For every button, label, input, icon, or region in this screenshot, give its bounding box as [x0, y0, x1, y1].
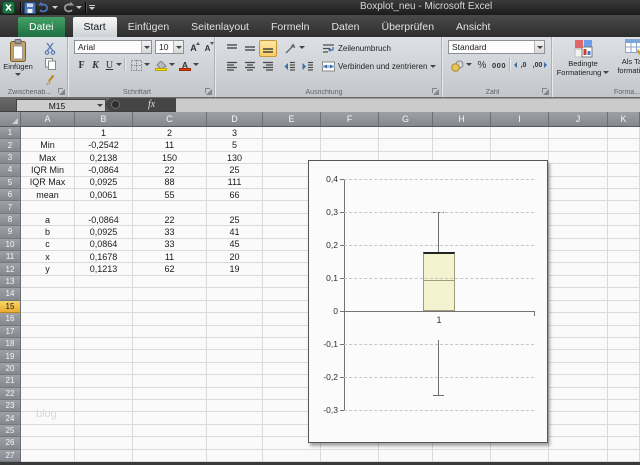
cell-A18[interactable]	[21, 338, 75, 350]
cell-B12[interactable]: 0,1213	[75, 263, 133, 275]
cell-A8[interactable]: a	[21, 214, 75, 226]
customize-quick-access-icon[interactable]	[89, 5, 95, 10]
cell-K18[interactable]	[608, 338, 640, 350]
row-header-11[interactable]: 11	[0, 251, 21, 263]
number-dialog-launcher-icon[interactable]	[542, 88, 549, 95]
row-header-9[interactable]: 9	[0, 226, 21, 238]
row-header-6[interactable]: 6	[0, 189, 21, 201]
cell-K26[interactable]	[608, 437, 640, 449]
tab-formeln[interactable]: Formeln	[260, 17, 321, 37]
cell-J26[interactable]	[549, 437, 608, 449]
cell-B8[interactable]: -0,0864	[75, 214, 133, 226]
cell-B14[interactable]	[75, 288, 133, 300]
cell-B10[interactable]: 0,0864	[75, 239, 133, 251]
tab-ansicht[interactable]: Ansicht	[445, 17, 501, 37]
column-header-B[interactable]: B	[75, 112, 133, 127]
italic-button[interactable]: K	[88, 57, 103, 74]
merge-center-icon	[322, 61, 335, 72]
cell-K23[interactable]	[608, 400, 640, 412]
number-format-combo[interactable]: Standard	[448, 40, 545, 54]
cell-D4[interactable]: 25	[207, 164, 263, 176]
row-header-27[interactable]: 27	[0, 450, 21, 462]
cell-A17[interactable]	[21, 326, 75, 338]
cell-D10[interactable]: 45	[207, 239, 263, 251]
align-top-button[interactable]	[223, 40, 241, 57]
cell-K12[interactable]	[608, 263, 640, 275]
cell-K27[interactable]	[608, 450, 640, 462]
cell-J25[interactable]	[549, 425, 608, 437]
cell-K20[interactable]	[608, 363, 640, 375]
row-header-16[interactable]: 16	[0, 313, 21, 325]
cell-K16[interactable]	[608, 313, 640, 325]
cell-J4[interactable]	[549, 164, 608, 176]
cell-J7[interactable]	[549, 201, 608, 213]
shrink-font-button[interactable]: A	[200, 40, 215, 56]
row-header-18[interactable]: 18	[0, 338, 21, 350]
insert-function-icon[interactable]: fx	[148, 99, 155, 110]
cell-C25[interactable]	[133, 425, 207, 437]
thousands-button[interactable]: 000	[489, 57, 509, 74]
cell-D16[interactable]	[207, 313, 263, 325]
cell-J5[interactable]	[549, 177, 608, 189]
cell-J16[interactable]	[549, 313, 608, 325]
excel-logo-icon[interactable]	[2, 1, 15, 14]
tab-ueberpruefen[interactable]: Überprüfen	[371, 17, 446, 37]
row-header-21[interactable]: 21	[0, 375, 21, 387]
cell-I27[interactable]	[491, 450, 549, 462]
wrap-text-button[interactable]: Zeilenumbruch	[319, 40, 394, 57]
fill-color-dropdown-caret[interactable]	[169, 63, 175, 66]
cell-D2[interactable]: 5	[207, 139, 263, 151]
row-header-25[interactable]: 25	[0, 425, 21, 437]
qat-separator-2	[85, 2, 86, 13]
increase-indent-button[interactable]	[299, 58, 317, 75]
cell-H27[interactable]	[433, 450, 491, 462]
y-tick-label: 0,3	[309, 207, 338, 217]
cell-J10[interactable]	[549, 239, 608, 251]
cell-E1[interactable]	[263, 127, 321, 139]
cell-B15[interactable]	[75, 301, 133, 313]
cell-J14[interactable]	[549, 288, 608, 300]
cell-C24[interactable]	[133, 412, 207, 424]
cell-B6[interactable]: 0,0061	[75, 189, 133, 201]
tab-einfuegen[interactable]: Einfügen	[117, 17, 180, 37]
cell-K25[interactable]	[608, 425, 640, 437]
tab-daten[interactable]: Daten	[320, 17, 370, 37]
cell-C11[interactable]: 11	[133, 251, 207, 263]
format-as-table-icon	[625, 39, 640, 56]
cell-J11[interactable]	[549, 251, 608, 263]
percent-icon: %	[478, 60, 487, 71]
cut-button[interactable]	[38, 40, 62, 56]
bold-button[interactable]: F	[74, 57, 89, 74]
cell-A16[interactable]	[21, 313, 75, 325]
alignment-dialog-launcher-icon[interactable]	[432, 88, 439, 95]
cell-D22[interactable]	[207, 388, 263, 400]
cell-K11[interactable]	[608, 251, 640, 263]
cell-K22[interactable]	[608, 388, 640, 400]
cell-J13[interactable]	[549, 276, 608, 288]
watermark: blog	[36, 408, 57, 420]
cell-K2[interactable]	[608, 139, 640, 151]
format-as-table-button[interactable]: Als Tab formatie...	[614, 39, 640, 93]
cell-H2[interactable]	[433, 139, 491, 151]
decrease-decimal-button[interactable]: ,00	[530, 57, 549, 74]
cell-D23[interactable]	[207, 400, 263, 412]
cell-A21[interactable]	[21, 375, 75, 387]
cell-C23[interactable]	[133, 400, 207, 412]
font-size-value: 10	[156, 42, 173, 52]
cell-B24[interactable]	[75, 412, 133, 424]
cell-B27[interactable]	[75, 450, 133, 462]
cell-B19[interactable]	[75, 350, 133, 362]
cell-D27[interactable]	[207, 450, 263, 462]
cell-D21[interactable]	[207, 375, 263, 387]
redo-icon[interactable]	[62, 2, 74, 13]
align-bottom-button[interactable]	[259, 40, 277, 57]
cell-J12[interactable]	[549, 263, 608, 275]
cell-B22[interactable]	[75, 388, 133, 400]
chart-gridline	[344, 377, 534, 378]
sheet-row-27: 27	[0, 450, 640, 462]
cell-J2[interactable]	[549, 139, 608, 151]
cell-D1[interactable]: 3	[207, 127, 263, 139]
group-font-label: Schriftart	[68, 89, 206, 96]
column-header-G[interactable]: G	[379, 112, 433, 127]
font-color-dropdown-caret[interactable]	[193, 63, 199, 66]
merge-center-label: Verbinden und zentrieren	[338, 62, 427, 71]
row-header-19[interactable]: 19	[0, 350, 21, 362]
cell-C17[interactable]	[133, 326, 207, 338]
cell-D9[interactable]: 41	[207, 226, 263, 238]
row-header-22[interactable]: 22	[0, 388, 21, 400]
cell-A15[interactable]	[21, 301, 75, 313]
currency-icon	[451, 60, 464, 72]
row-header-12[interactable]: 12	[0, 263, 21, 275]
tab-datei[interactable]: Datei	[18, 17, 65, 37]
cell-K10[interactable]	[608, 239, 640, 251]
format-painter-icon	[44, 74, 56, 86]
column-header-C[interactable]: C	[133, 112, 207, 127]
cell-K6[interactable]	[608, 189, 640, 201]
cell-E27[interactable]	[263, 450, 321, 462]
column-header-J[interactable]: J	[549, 112, 608, 127]
cell-J24[interactable]	[549, 412, 608, 424]
cell-H1[interactable]	[433, 127, 491, 139]
align-right-button[interactable]	[259, 58, 277, 75]
cell-A6[interactable]: mean	[21, 189, 75, 201]
orientation-icon	[284, 43, 296, 55]
y-axis-tick	[340, 245, 344, 246]
cell-C6[interactable]: 55	[133, 189, 207, 201]
cell-K14[interactable]	[608, 288, 640, 300]
cell-J17[interactable]	[549, 326, 608, 338]
row-header-2[interactable]: 2	[0, 139, 21, 151]
cell-D17[interactable]	[207, 326, 263, 338]
align-middle-button[interactable]	[241, 40, 259, 57]
row-header-15[interactable]: 15	[0, 301, 21, 313]
y-axis-tick	[340, 410, 344, 411]
cell-C20[interactable]	[133, 363, 207, 375]
cell-K8[interactable]	[608, 214, 640, 226]
undo-dropdown-caret[interactable]	[52, 6, 58, 9]
cell-J8[interactable]	[549, 214, 608, 226]
cell-B11[interactable]: 0,1678	[75, 251, 133, 263]
cell-B13[interactable]	[75, 276, 133, 288]
y-tick-label: 0	[309, 306, 338, 316]
cell-J9[interactable]	[549, 226, 608, 238]
font-size-combo[interactable]: 10	[155, 40, 184, 54]
cell-C1[interactable]: 2	[133, 127, 207, 139]
cell-A7[interactable]	[21, 201, 75, 213]
cell-A25[interactable]	[21, 425, 75, 437]
cell-C18[interactable]	[133, 338, 207, 350]
cell-K3[interactable]	[608, 152, 640, 164]
row-header-10[interactable]: 10	[0, 239, 21, 251]
cell-B3[interactable]: 0,2138	[75, 152, 133, 164]
cell-D19[interactable]	[207, 350, 263, 362]
cell-D18[interactable]	[207, 338, 263, 350]
cell-A2[interactable]: Min	[21, 139, 75, 151]
cell-C22[interactable]	[133, 388, 207, 400]
cell-C3[interactable]: 150	[133, 152, 207, 164]
cell-J3[interactable]	[549, 152, 608, 164]
decrease-indent-button[interactable]	[281, 58, 299, 75]
conditional-formatting-button[interactable]: Bedingte Formatierung	[554, 39, 612, 93]
cell-C4[interactable]: 22	[133, 164, 207, 176]
cell-A13[interactable]	[21, 276, 75, 288]
cell-B21[interactable]	[75, 375, 133, 387]
orientation-button[interactable]	[281, 40, 299, 57]
cell-J6[interactable]	[549, 189, 608, 201]
cell-I1[interactable]	[491, 127, 549, 139]
cell-B18[interactable]	[75, 338, 133, 350]
cell-A22[interactable]	[21, 388, 75, 400]
cell-K7[interactable]	[608, 201, 640, 213]
underline-button[interactable]: U	[102, 57, 117, 74]
cell-D12[interactable]: 19	[207, 263, 263, 275]
row-header-4[interactable]: 4	[0, 164, 21, 176]
row-header-7[interactable]: 7	[0, 201, 21, 213]
column-header-D[interactable]: D	[207, 112, 263, 127]
cell-D14[interactable]	[207, 288, 263, 300]
cell-D5[interactable]: 111	[207, 177, 263, 189]
column-header-E[interactable]: E	[263, 112, 321, 127]
row-header-1[interactable]: 1	[0, 127, 21, 139]
align-center-button[interactable]	[241, 58, 259, 75]
column-header-H[interactable]: H	[433, 112, 491, 127]
cell-A10[interactable]: c	[21, 239, 75, 251]
align-left-button[interactable]	[223, 58, 241, 75]
percent-button[interactable]: %	[474, 57, 490, 74]
cell-A9[interactable]: b	[21, 226, 75, 238]
cell-C7[interactable]	[133, 201, 207, 213]
row-header-26[interactable]: 26	[0, 437, 21, 449]
cell-B1[interactable]: 1	[75, 127, 133, 139]
cell-D15[interactable]	[207, 301, 263, 313]
cell-A20[interactable]	[21, 363, 75, 375]
cell-G1[interactable]	[379, 127, 433, 139]
cell-B5[interactable]: 0,0925	[75, 177, 133, 189]
cell-B16[interactable]	[75, 313, 133, 325]
cell-C15[interactable]	[133, 301, 207, 313]
cell-C5[interactable]: 88	[133, 177, 207, 189]
cell-J18[interactable]	[549, 338, 608, 350]
save-icon[interactable]	[24, 2, 36, 14]
column-header-K[interactable]: K	[608, 112, 640, 127]
cell-D11[interactable]: 20	[207, 251, 263, 263]
cell-B17[interactable]	[75, 326, 133, 338]
cell-B23[interactable]	[75, 400, 133, 412]
name-box[interactable]: M15	[16, 99, 106, 112]
cell-K9[interactable]	[608, 226, 640, 238]
cell-K5[interactable]	[608, 177, 640, 189]
cell-A4[interactable]: IQR Min	[21, 164, 75, 176]
cell-K13[interactable]	[608, 276, 640, 288]
cell-B26[interactable]	[75, 437, 133, 449]
cell-J22[interactable]	[549, 388, 608, 400]
cell-A12[interactable]: y	[21, 263, 75, 275]
cell-D24[interactable]	[207, 412, 263, 424]
tab-start[interactable]: Start	[73, 17, 117, 37]
borders-dropdown-caret[interactable]	[144, 63, 150, 66]
font-dialog-launcher-icon[interactable]	[205, 88, 212, 95]
cell-C19[interactable]	[133, 350, 207, 362]
cell-J1[interactable]	[549, 127, 608, 139]
tab-seitenlayout[interactable]: Seitenlayout	[180, 17, 260, 37]
cell-B20[interactable]	[75, 363, 133, 375]
cell-C16[interactable]	[133, 313, 207, 325]
format-painter-button[interactable]	[38, 72, 62, 88]
cell-J27[interactable]	[549, 450, 608, 462]
orientation-dropdown-caret[interactable]	[299, 46, 305, 49]
fill-color-button[interactable]	[152, 57, 170, 74]
cell-A11[interactable]: x	[21, 251, 75, 263]
cell-C8[interactable]: 22	[133, 214, 207, 226]
font-color-button[interactable]: A	[176, 57, 194, 74]
cell-D8[interactable]: 25	[207, 214, 263, 226]
borders-button[interactable]	[128, 57, 145, 74]
cell-A19[interactable]	[21, 350, 75, 362]
cell-J20[interactable]	[549, 363, 608, 375]
cell-B25[interactable]	[75, 425, 133, 437]
cell-A27[interactable]	[21, 450, 75, 462]
cell-B7[interactable]	[75, 201, 133, 213]
underline-dropdown-caret[interactable]	[116, 63, 122, 66]
align-bottom-icon	[262, 43, 274, 54]
cell-D25[interactable]	[207, 425, 263, 437]
cell-C27[interactable]	[133, 450, 207, 462]
cell-I2[interactable]	[491, 139, 549, 151]
cell-C13[interactable]	[133, 276, 207, 288]
row-header-8[interactable]: 8	[0, 214, 21, 226]
font-family-value: Arial	[75, 42, 141, 52]
cell-A1[interactable]	[21, 127, 75, 139]
cell-C10[interactable]: 33	[133, 239, 207, 251]
cell-E2[interactable]	[263, 139, 321, 151]
cell-B9[interactable]: 0,0925	[75, 226, 133, 238]
cell-J23[interactable]	[549, 400, 608, 412]
cell-A26[interactable]	[21, 437, 75, 449]
font-family-combo[interactable]: Arial	[74, 40, 152, 54]
select-all-corner[interactable]	[0, 112, 21, 127]
cell-K4[interactable]	[608, 164, 640, 176]
name-box-dropdown-icon[interactable]	[97, 104, 103, 107]
increase-decimal-button[interactable]: ,0	[512, 57, 531, 74]
formula-input[interactable]	[176, 98, 640, 112]
cell-G27[interactable]	[379, 450, 433, 462]
cell-A14[interactable]	[21, 288, 75, 300]
cell-K24[interactable]	[608, 412, 640, 424]
cell-K17[interactable]	[608, 326, 640, 338]
cell-K1[interactable]	[608, 127, 640, 139]
cell-K15[interactable]	[608, 301, 640, 313]
column-header-I[interactable]: I	[491, 112, 549, 127]
paste-button[interactable]: Einfügen	[3, 39, 33, 89]
cell-D6[interactable]: 66	[207, 189, 263, 201]
cell-C9[interactable]: 33	[133, 226, 207, 238]
cell-D13[interactable]	[207, 276, 263, 288]
cell-C14[interactable]	[133, 288, 207, 300]
copy-button[interactable]	[38, 56, 62, 72]
redo-dropdown-caret[interactable]	[76, 6, 82, 9]
column-header-A[interactable]: A	[21, 112, 75, 127]
cell-C21[interactable]	[133, 375, 207, 387]
cell-C12[interactable]: 62	[133, 263, 207, 275]
row-header-14[interactable]: 14	[0, 288, 21, 300]
chart-plot: 1 0,40,30,20,10-0,1-0,2-0,3	[309, 161, 547, 442]
cell-A3[interactable]: Max	[21, 152, 75, 164]
chart-gridline	[344, 344, 534, 345]
undo-icon[interactable]	[38, 2, 50, 13]
cell-B4[interactable]: -0,0864	[75, 164, 133, 176]
cell-F1[interactable]	[321, 127, 379, 139]
cell-J21[interactable]	[549, 375, 608, 387]
cell-K19[interactable]	[608, 350, 640, 362]
clipboard-dialog-launcher-icon[interactable]	[58, 88, 65, 95]
merge-center-button[interactable]: Verbinden und zentrieren	[319, 58, 439, 75]
cell-K21[interactable]	[608, 375, 640, 387]
cell-G2[interactable]	[379, 139, 433, 151]
row-header-23[interactable]: 23	[0, 400, 21, 412]
row-header-5[interactable]: 5	[0, 177, 21, 189]
name-box-value: M15	[17, 101, 97, 111]
cell-C26[interactable]	[133, 437, 207, 449]
row-header-24[interactable]: 24	[0, 412, 21, 424]
row-header-20[interactable]: 20	[0, 363, 21, 375]
row-header-3[interactable]: 3	[0, 152, 21, 164]
cell-C2[interactable]: 11	[133, 139, 207, 151]
currency-dropdown-caret[interactable]	[466, 63, 472, 66]
row-header-17[interactable]: 17	[0, 326, 21, 338]
cell-A5[interactable]: IQR Max	[21, 177, 75, 189]
cell-D26[interactable]	[207, 437, 263, 449]
cell-J15[interactable]	[549, 301, 608, 313]
boxplot-chart[interactable]: 1 0,40,30,20,10-0,1-0,2-0,3	[308, 160, 548, 443]
grow-font-button[interactable]: A	[186, 40, 201, 56]
cell-J19[interactable]	[549, 350, 608, 362]
thousands-icon: 000	[492, 61, 506, 70]
row-header-13[interactable]: 13	[0, 276, 21, 288]
cell-F27[interactable]	[321, 450, 379, 462]
cell-D20[interactable]	[207, 363, 263, 375]
cell-D3[interactable]: 130	[207, 152, 263, 164]
column-header-F[interactable]: F	[321, 112, 379, 127]
cell-F2[interactable]	[321, 139, 379, 151]
cell-D7[interactable]	[207, 201, 263, 213]
currency-button[interactable]	[448, 57, 467, 74]
cell-B2[interactable]: -0,2542	[75, 139, 133, 151]
